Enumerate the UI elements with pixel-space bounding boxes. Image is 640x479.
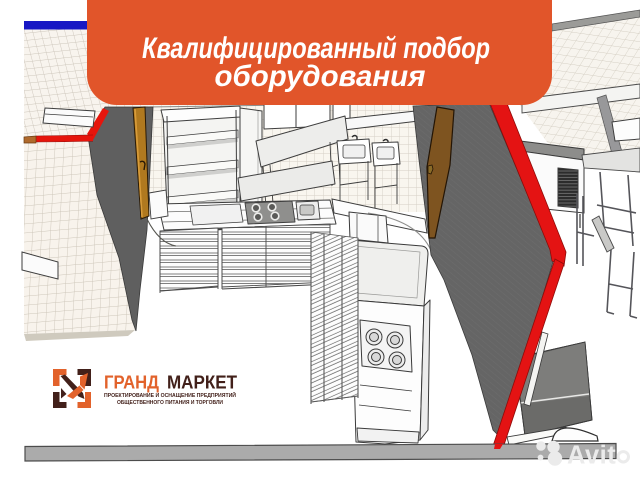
svg-text:оборудования: оборудования: [215, 60, 426, 93]
svg-text:МАРКЕТ: МАРКЕТ: [167, 372, 238, 393]
svg-text:ОБЩЕСТВЕННОГО ПИТАНИЯ И ТОРГОВ: ОБЩЕСТВЕННОГО ПИТАНИЯ И ТОРГОВЛИ: [117, 400, 223, 406]
svg-text:ПРОЕКТИРОВАНИЕ И ОСНАЩЕНИЕ ПРЕ: ПРОЕКТИРОВАНИЕ И ОСНАЩЕНИЕ ПРЕДПРИЯТИЙ: [104, 391, 236, 399]
svg-text:Avit: Avit: [567, 442, 616, 470]
svg-text:ГРАНД: ГРАНД: [104, 372, 159, 393]
